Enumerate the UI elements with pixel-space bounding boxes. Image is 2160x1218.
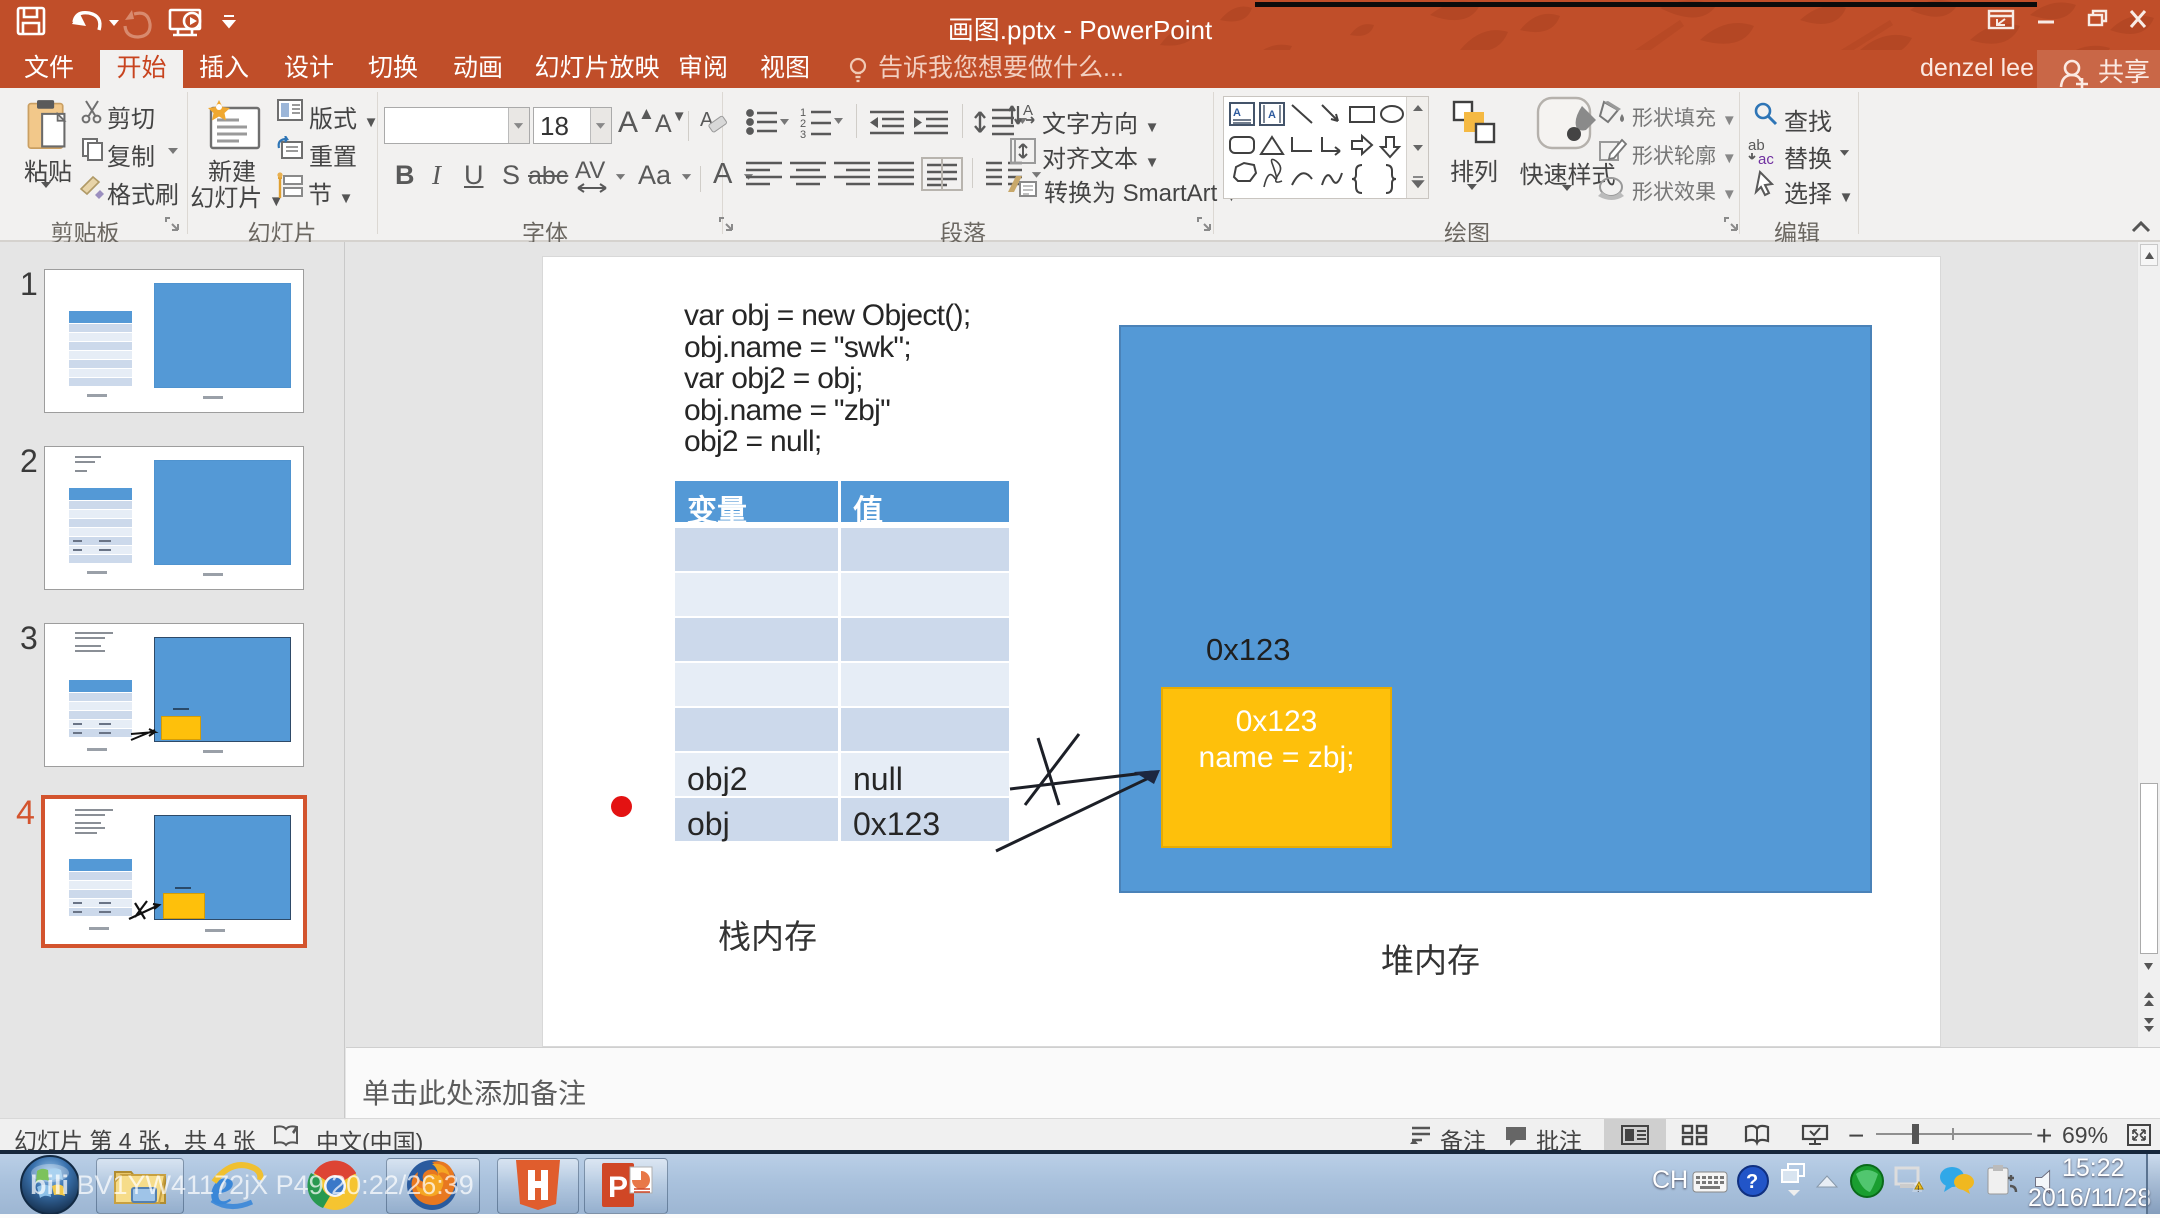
svg-text:A: A <box>1233 107 1241 119</box>
svg-text:?: ? <box>1746 1171 1758 1193</box>
svg-text:A: A <box>1023 102 1033 119</box>
svg-text:3: 3 <box>800 129 806 138</box>
svg-text:P: P <box>608 1171 628 1204</box>
svg-text:ac: ac <box>1758 151 1774 166</box>
svg-text:A: A <box>1268 109 1276 121</box>
svg-text:!: ! <box>1917 1184 1920 1194</box>
